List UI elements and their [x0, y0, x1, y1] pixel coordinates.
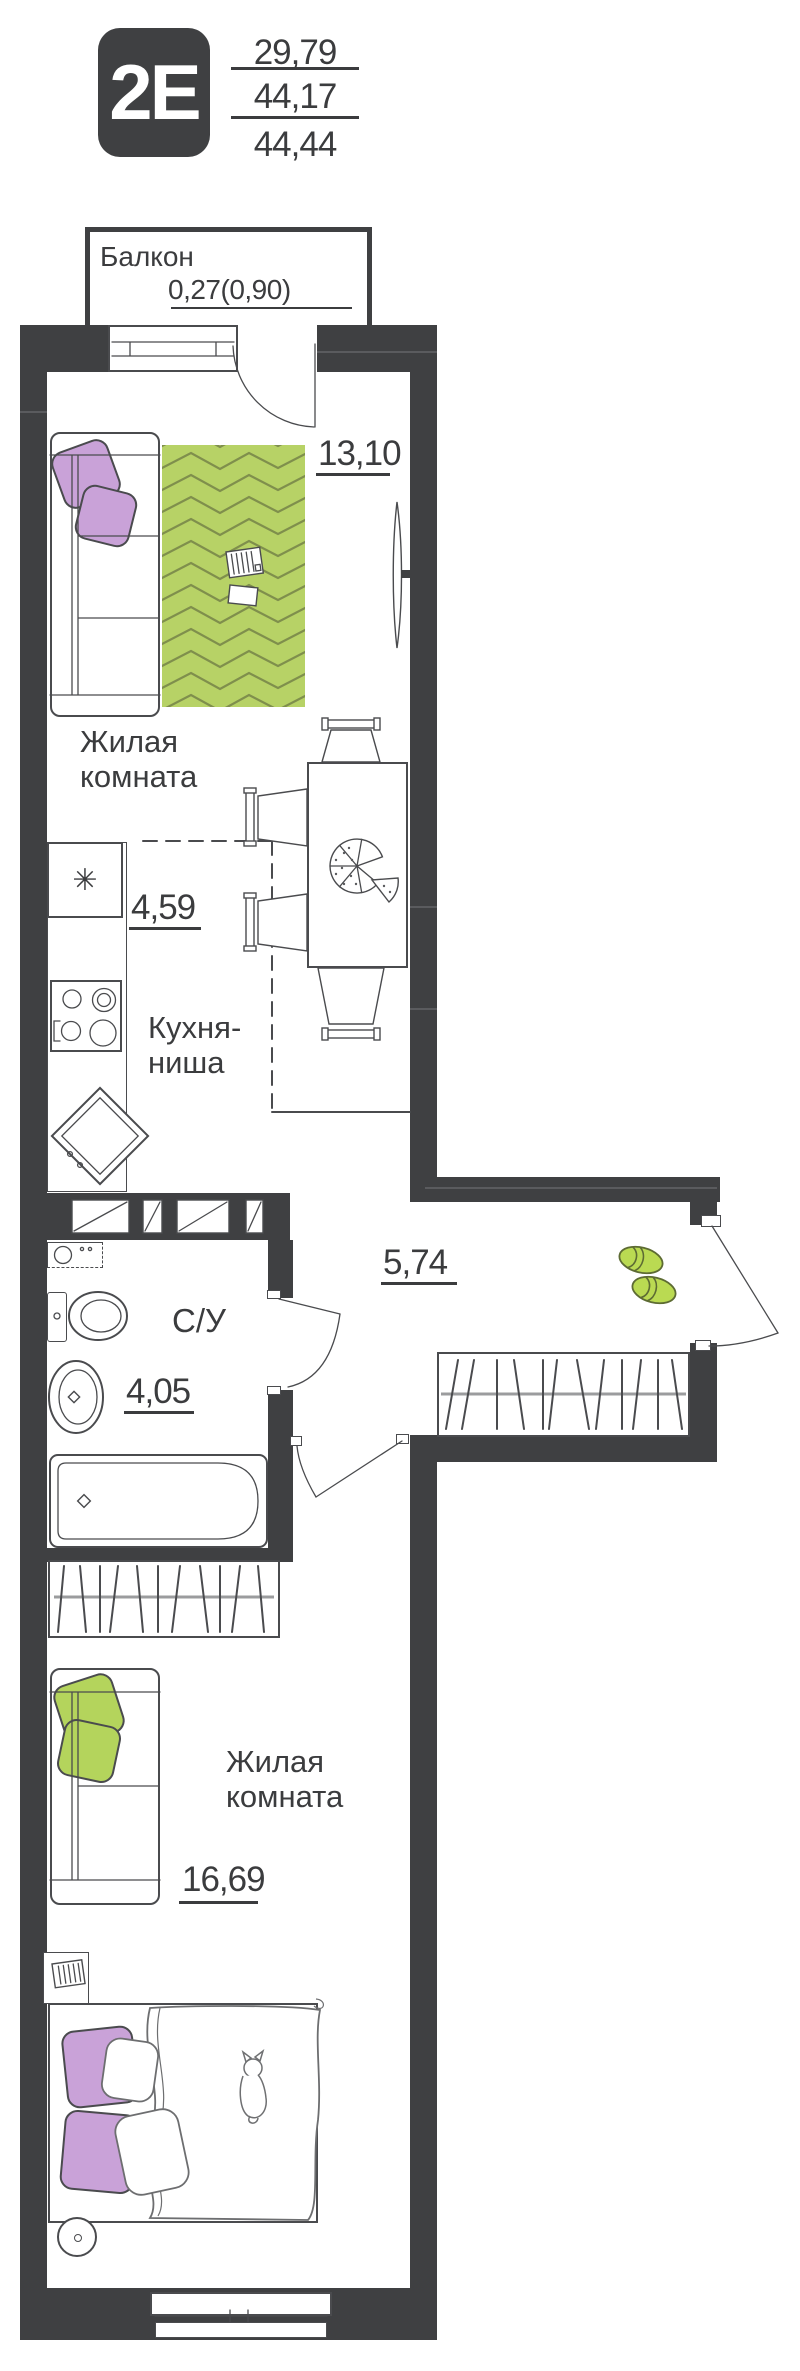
tv-icon — [393, 502, 410, 648]
entrance-door-jamb-top — [701, 1215, 721, 1227]
bed-pillow-purple-1 — [60, 2024, 140, 2109]
washing-machine-icon — [47, 1242, 103, 1268]
wall-bathroom-top — [20, 1193, 290, 1240]
living2-area-underline — [179, 1901, 258, 1904]
area-value-total: 44,17 — [233, 77, 357, 117]
window-top — [108, 325, 238, 372]
bathroom-door-jamb-top — [267, 1290, 281, 1299]
wall-hallway-bottom — [410, 1437, 717, 1462]
chair-icon — [318, 968, 384, 1040]
wall-bathroom-right-lower — [268, 1390, 293, 1560]
balcony-door-icon — [233, 344, 315, 427]
wall-right-lower — [410, 1435, 437, 2340]
living1-area-underline — [316, 473, 390, 476]
living2-area: 16,69 — [182, 1860, 265, 1900]
bathroom-area-underline — [124, 1411, 194, 1414]
wall-hallway-top — [410, 1177, 720, 1202]
bed-pillow-purple-2 — [59, 2109, 140, 2195]
balcony-label: Балкон — [100, 241, 194, 273]
room2-door-jamb-left — [290, 1436, 302, 1446]
toilet-tank — [47, 1292, 67, 1342]
coffee-table-inner — [208, 513, 281, 640]
apartment-type-badge: 2E — [98, 28, 210, 157]
bedside-table — [57, 2217, 97, 2257]
nightstand — [43, 1952, 89, 2004]
living2-label: Жилая комната — [226, 1744, 343, 1815]
bedside-table-dot — [74, 2234, 82, 2242]
entrance-door-jamb-bottom — [695, 1340, 711, 1351]
kitchen-label: Кухня- ниша — [148, 1010, 241, 1081]
floor-plan: 2E 29,79 44,17 44,44 Балкон 0,27(0,90) ✳ — [0, 0, 800, 2371]
kitchen-area: 4,59 — [131, 888, 195, 928]
wardrobe-living2 — [48, 1560, 280, 1638]
entrance-door-icon — [709, 1226, 778, 1346]
wall-joint — [20, 411, 47, 413]
wall-joint — [317, 351, 437, 353]
bathroom-door-icon — [279, 1299, 340, 1387]
room2-door-icon — [297, 1441, 402, 1497]
wall-joint — [410, 906, 437, 908]
chair-icon — [322, 718, 380, 762]
hallway-area: 5,74 — [383, 1243, 447, 1283]
fridge-symbol: ✳ — [72, 863, 97, 898]
fridge-icon: ✳ — [47, 842, 123, 918]
stove-icon — [50, 980, 122, 1052]
balcony-area: 0,27(0,90) — [168, 274, 291, 306]
area-value-total-with-balcony: 44,44 — [233, 125, 357, 165]
wall-right-upper — [410, 325, 437, 1202]
pillow-green-2 — [55, 1717, 124, 1786]
chair-icon — [244, 893, 307, 951]
room2-door-jamb-right — [396, 1434, 409, 1444]
wall-left — [20, 325, 47, 2340]
living1-label: Жилая комната — [80, 724, 197, 795]
area-separator-2 — [231, 116, 359, 119]
kitchen-area-underline — [129, 927, 201, 930]
dining-table — [307, 762, 408, 968]
apartment-type-label: 2E — [109, 47, 198, 138]
bathtub-icon — [50, 1455, 267, 1547]
wall-joint — [410, 1008, 437, 1010]
wardrobe-hallway — [437, 1352, 690, 1437]
hallway-area-underline — [381, 1282, 457, 1285]
window-bottom — [150, 2292, 332, 2316]
bathroom-door-jamb-bottom — [267, 1386, 281, 1395]
living1-area: 13,10 — [318, 434, 401, 474]
window-bottom-sill — [155, 2322, 327, 2338]
chair-icon — [244, 788, 307, 846]
area-separator-1 — [231, 67, 359, 70]
wall-joint — [425, 1187, 717, 1189]
balcony-area-underline — [171, 307, 352, 309]
bathroom-area: 4,05 — [126, 1372, 190, 1412]
bathroom-label: С/У — [172, 1302, 226, 1340]
slippers-icon — [617, 1243, 679, 1308]
bathroom-sink-icon — [49, 1361, 103, 1433]
